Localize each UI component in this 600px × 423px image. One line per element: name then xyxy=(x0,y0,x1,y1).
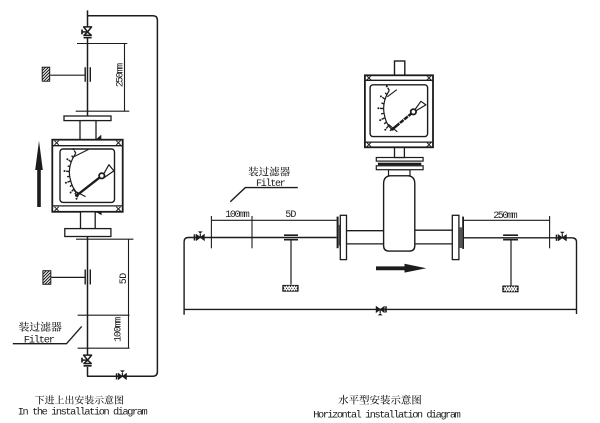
svg-text:100mm: 100mm xyxy=(225,210,249,221)
svg-text:Filter: Filter xyxy=(24,335,55,347)
svg-text:Horizontal installation diagra: Horizontal installation diagram xyxy=(313,409,460,421)
svg-text:250mm: 250mm xyxy=(493,211,517,222)
svg-text:5D: 5D xyxy=(119,273,130,285)
svg-text:In the installation diagram: In the installation diagram xyxy=(18,407,148,419)
svg-text:5D: 5D xyxy=(285,210,296,221)
svg-text:Filter: Filter xyxy=(256,178,286,190)
svg-text:250mm: 250mm xyxy=(115,63,126,87)
svg-text:100mm: 100mm xyxy=(113,317,124,342)
